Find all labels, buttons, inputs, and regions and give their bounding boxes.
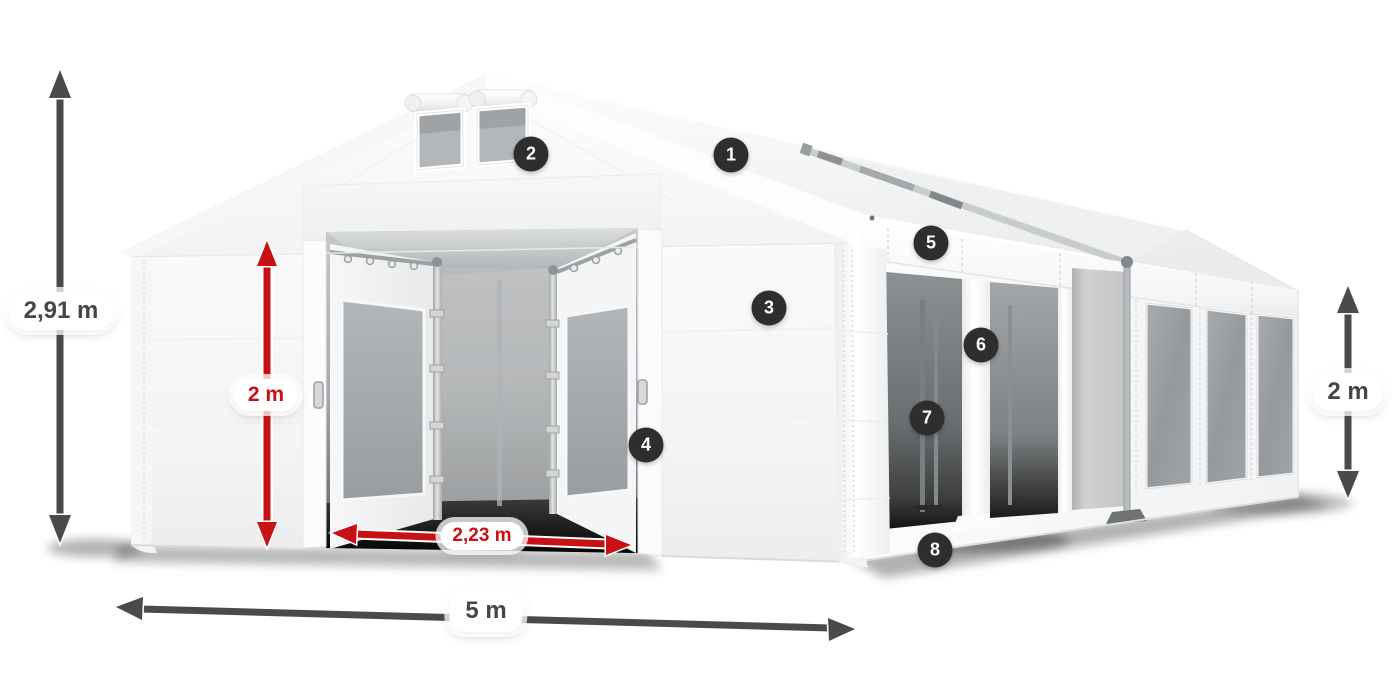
dimension-label-total-width: 5 m [449,590,522,632]
diagram-canvas: 2,91 m 2 m 2,23 m 5 m 2 m 1 2 3 4 5 6 7 … [0,0,1400,700]
part-badge-7[interactable]: 7 [910,401,945,436]
part-badge-1[interactable]: 1 [714,138,749,173]
part-badge-5[interactable]: 5 [914,226,949,261]
door-handle-right[interactable] [638,380,647,404]
dimension-label-door-width: 2,23 m [440,522,523,550]
part-badge-6[interactable]: 6 [964,328,999,363]
part-badge-2[interactable]: 2 [514,137,549,172]
door-leaf-left [330,244,434,549]
front-wall-right-panel [662,243,852,562]
side-post-1 [962,279,990,521]
tent-illustration [0,0,1400,700]
part-badge-4[interactable]: 4 [629,428,664,463]
vent-window-left [417,110,463,170]
door-handle-left[interactable] [314,382,323,408]
part-badge-8[interactable]: 8 [918,533,953,568]
part-badge-3[interactable]: 3 [752,291,787,326]
side-window-2 [1206,309,1247,484]
side-opening-2 [990,282,1058,518]
side-window-1 [1146,303,1192,489]
dimension-label-door-height: 2 m [234,379,298,411]
door-leaf-right [553,233,636,553]
side-window-3 [1257,314,1294,478]
front-right-corner [834,243,890,567]
door-interior [320,220,645,560]
side-sliding-door[interactable] [1072,268,1126,510]
dimension-label-side-height: 2 m [1312,373,1383,411]
side-post-2 [1058,288,1072,513]
dimension-label-total-height: 2,91 m [9,292,114,330]
